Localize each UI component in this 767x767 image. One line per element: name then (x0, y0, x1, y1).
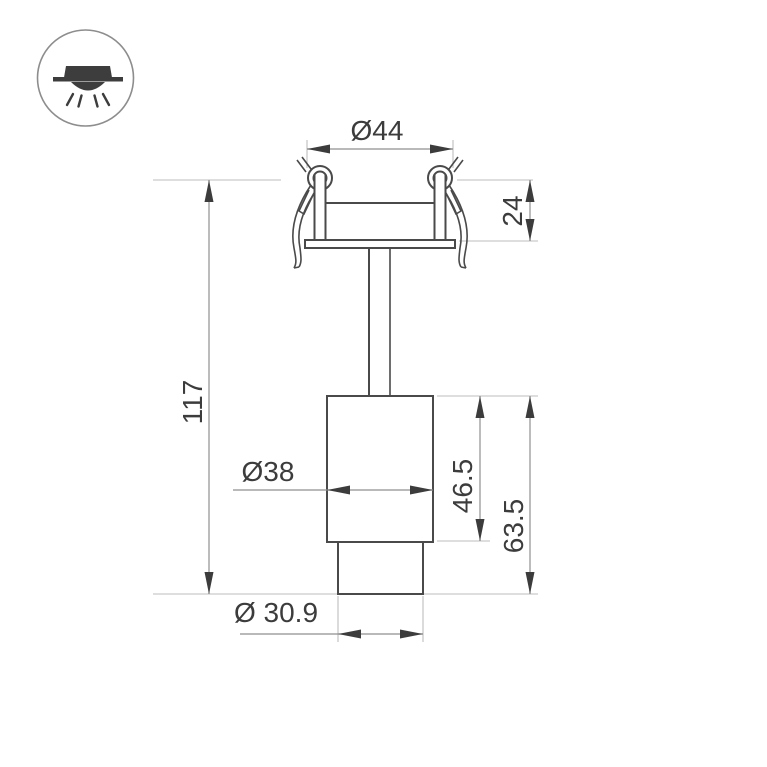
dim-arrow-down (476, 519, 485, 541)
fixture-outline (293, 157, 467, 594)
spring-wire-tip (461, 267, 466, 268)
dim-cutout-diameter: Ø44 (307, 115, 453, 154)
dim-tip-diameter: Ø 30.9 (234, 597, 423, 639)
icon-ceiling-bar (53, 77, 123, 82)
post-mask (435, 178, 445, 240)
technical-drawing-canvas: Ø44 24 117 Ø38 (0, 0, 767, 767)
dim-arrow-left (338, 630, 361, 639)
dim-lower-height-label: 63.5 (498, 499, 529, 554)
fixture-dimension-drawing: Ø44 24 117 Ø38 (0, 0, 767, 767)
dim-overall-height: 117 (177, 180, 214, 594)
dim-tip-diameter-label: Ø 30.9 (234, 597, 318, 628)
spring-tail (449, 157, 463, 172)
dim-overall-height-label: 117 (177, 380, 208, 425)
dim-arrow-left (307, 145, 330, 154)
mount-type-badge (38, 30, 134, 126)
spring-wire-line (293, 185, 311, 268)
dim-arrow-up (476, 396, 485, 418)
dim-recess-depth: 24 (497, 180, 535, 241)
lamp-body (327, 396, 433, 542)
dim-body-diameter-label: Ø38 (242, 456, 295, 487)
lamp-tip (338, 542, 423, 594)
spring-wire-tip (294, 267, 299, 268)
dim-cutout-diameter-label: Ø44 (351, 115, 404, 146)
icon-housing (64, 66, 112, 78)
dim-arrow-right (430, 145, 453, 154)
post-mask (315, 178, 325, 240)
dim-recess-depth-label: 24 (497, 195, 528, 226)
dim-arrow-down (205, 572, 214, 594)
dim-arrow-up (205, 180, 214, 202)
dim-arrow-right (400, 630, 423, 639)
spring-wire-line (449, 185, 467, 268)
dim-arrow-up (526, 396, 535, 418)
dim-body-height: 46.5 (447, 396, 485, 541)
spring-tail (297, 157, 311, 172)
dim-lower-height: 63.5 (498, 396, 535, 594)
dim-body-height-label: 46.5 (447, 459, 478, 514)
dim-arrow-down (526, 572, 535, 594)
trim-flange (305, 240, 455, 248)
